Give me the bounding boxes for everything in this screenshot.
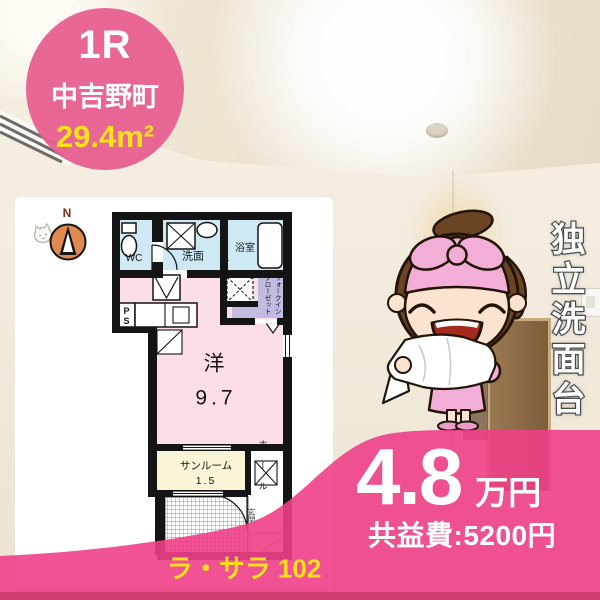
rent-unit: 万円 [475,466,541,514]
rent-amount: 4.8 [356,437,461,517]
listing-image: { "badge": { "layout": "1R", "area": "中吉… [0,0,600,600]
rent-price: 4.8 万円 [356,437,541,517]
band-bottom-strip [0,592,600,600]
common-fee: 共益費:5200円 [368,514,556,554]
property-name: ラ・サラ 102 [167,549,322,586]
